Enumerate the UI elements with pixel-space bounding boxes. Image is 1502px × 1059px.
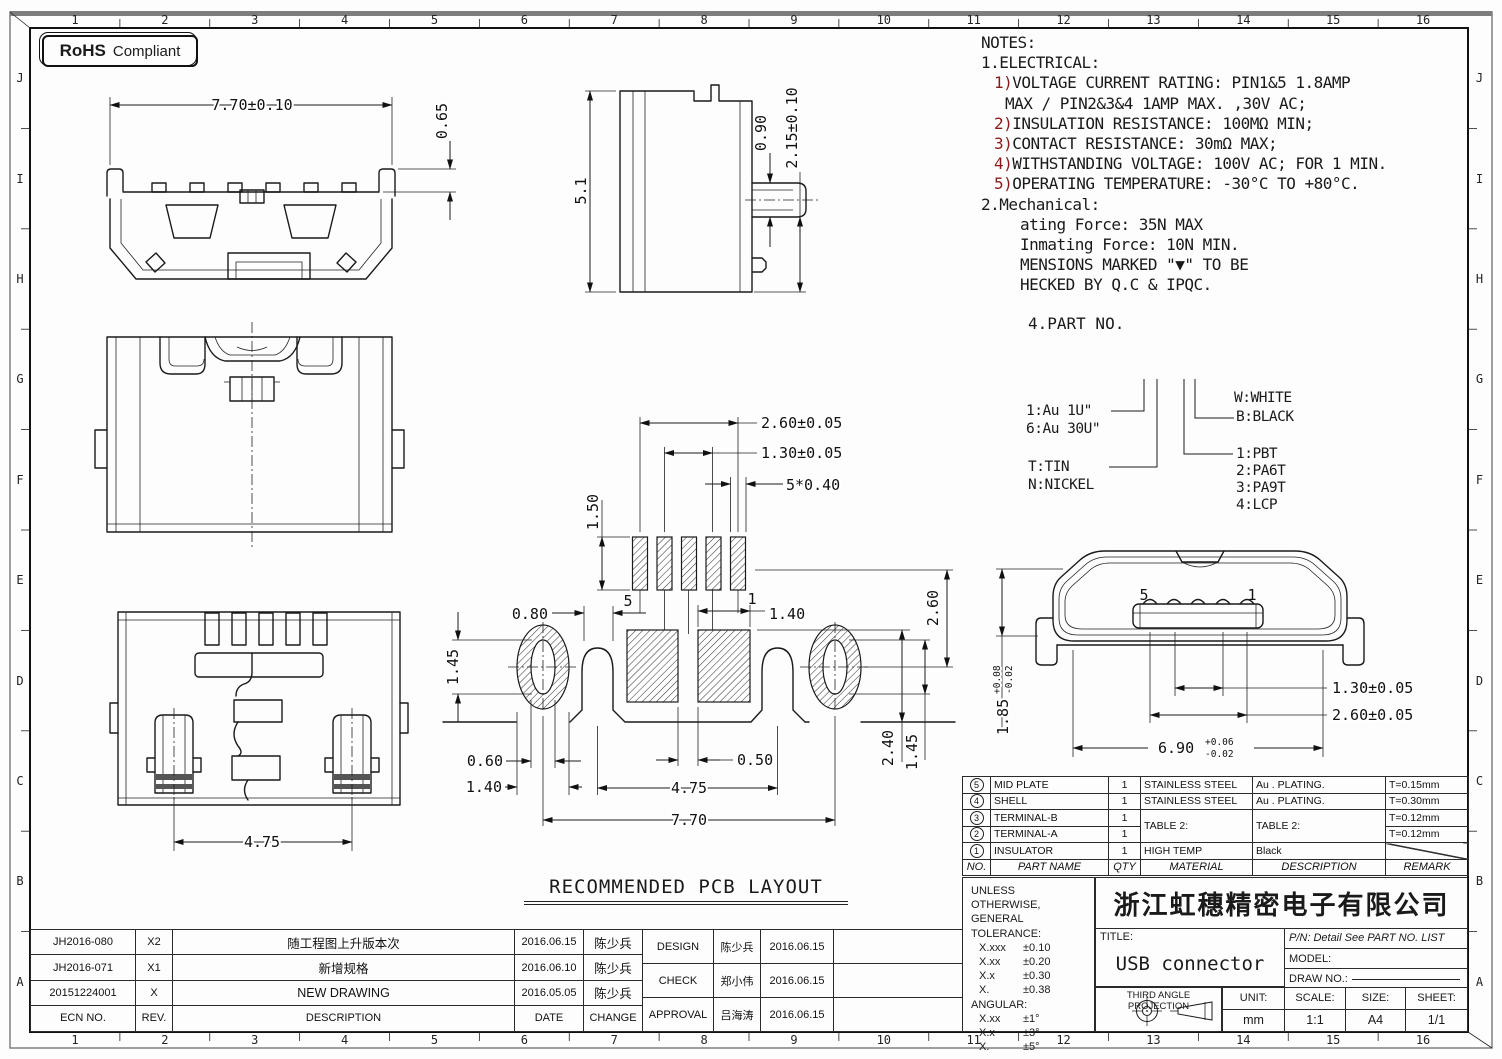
note-line: 1)VOLTAGE CURRENT RATING: PIN1&5 1.8AMP — [994, 73, 1387, 93]
company-name: 浙江虹穗精密电子有限公司 — [1095, 877, 1468, 929]
grid-label: D — [1469, 630, 1490, 730]
note-line: Inmating Force: 10N MIN. — [1020, 235, 1387, 255]
grid-label: 11 — [929, 12, 1019, 27]
partno-pa9t: 3:PA9T — [1236, 480, 1285, 496]
table-row: 5 MID PLATE1 STAINLESS STEELAu . PLATING… — [963, 777, 1469, 794]
dim-pcb-pin-pitch: 1.30±0.05 — [761, 444, 842, 462]
size-label-cell: SIZE: — [1345, 987, 1406, 1010]
grid-label: 9 — [749, 1033, 839, 1047]
grid-label: 10 — [839, 1033, 929, 1047]
grid-label: I — [1469, 128, 1490, 228]
partno-pbt: 1:PBT — [1236, 446, 1277, 462]
sheet-label-cell: SHEET: — [1405, 987, 1468, 1010]
rohs-label: Compliant — [113, 43, 181, 60]
grid-label: F — [10, 430, 30, 530]
revision-table: JH2016-080X2 随工程图上升版本次2016.06.15陈少兵 JH20… — [30, 929, 643, 1032]
notes-block: NOTES: 1.ELECTRICAL: 1)VOLTAGE CURRENT R… — [981, 33, 1387, 296]
tolerance-line: X.xx±0.20 — [971, 955, 1086, 969]
projection-label: THIRD ANGLE PROJECTION — [1096, 990, 1221, 1012]
dim-pcb-pin-span: 2.60±0.05 — [761, 414, 842, 432]
grid-label: 3 — [210, 12, 300, 27]
tolerance-line: X.xxx±0.10 — [971, 941, 1086, 955]
grid-label: 4 — [300, 1033, 390, 1047]
tolerance-line: X.±0.38 — [971, 983, 1086, 997]
dim-pcb-pad-length: 1.50 — [584, 494, 602, 530]
grid-label: C — [10, 731, 30, 831]
grid-label: B — [10, 831, 30, 931]
dim-pcb-slot-w: 0.60 — [467, 752, 503, 770]
grid-label: G — [10, 329, 30, 429]
grid-label: H — [1469, 229, 1490, 329]
dim-pcb-row-offset: 2.60 — [924, 590, 942, 626]
pcb-layout-view: 5 1 2.60±0.05 1.30±0.05 5*0.40 1.50 0.80… — [443, 414, 955, 829]
tolerance-line: UNLESS OTHERWISE, — [971, 884, 1086, 912]
rohs-badge: RoHS Compliant — [39, 32, 197, 66]
partno-nickel: N:NICKEL — [1028, 477, 1094, 493]
grid-label: J — [10, 28, 30, 128]
note-line: HECKED BY Q.C & IPQC. — [1020, 275, 1387, 295]
dim-pcb-slot-h2: 1.45 — [903, 734, 921, 770]
grid-label: 1 — [30, 12, 120, 27]
tolerance-block: UNLESS OTHERWISE, GENERAL TOLERANCE: X.x… — [962, 877, 1095, 1032]
grid-label: 16 — [1378, 1033, 1468, 1047]
approval-row: DESIGN陈少兵 2016.06.15 — [643, 930, 963, 964]
note-line: MAX / PIN2&3&4 1AMP MAX. ,30V AC; — [1005, 94, 1387, 114]
dim-bottom-span: 4.75 — [244, 833, 280, 851]
approval-row: CHECK郑小伟 2016.06.15 — [643, 964, 963, 998]
draw-no-label: DRAW NO.: — [1289, 973, 1348, 985]
grid-label: 3 — [210, 1033, 300, 1047]
dim-pcb-square-h: 2.40 — [879, 730, 897, 766]
tolerance-line: X.x±0.30 — [971, 969, 1086, 983]
partno-au1: 1:Au 1U" — [1026, 403, 1092, 419]
side-view: 5.1 0.90 2.15±0.10 — [572, 85, 818, 292]
sheet-value-cell: 1/1 — [1405, 1009, 1468, 1032]
note-line: 2)INSULATION RESISTANCE: 100MΩ MIN; — [994, 114, 1387, 134]
approval-row: APPROVAL吕海涛 2016.06.15 — [643, 998, 963, 1032]
mating-pin5-label: 5 — [1139, 586, 1148, 604]
draw-no-cell: DRAW NO.: — [1284, 968, 1468, 988]
drawing-title: USB connector — [1096, 953, 1284, 975]
tolerance-line: X.xx±1° — [971, 1012, 1086, 1026]
pn-cell: P/N: Detail See PART NO. LIST — [1284, 928, 1468, 949]
dim-pcb-hole-span: 7.70 — [671, 811, 707, 829]
grid-label: 9 — [749, 12, 839, 27]
revision-row: 20151224001X NEW DRAWING2016.05.05陈少兵 — [31, 980, 643, 1005]
grid-label: A — [1469, 932, 1490, 1032]
grid-label: J — [1469, 28, 1490, 128]
part-no-heading: 4.PART NO. — [1028, 314, 1124, 333]
grid-label: B — [1469, 831, 1490, 931]
table-row: 1 INSULATOR1 HIGH TEMPBlack — [963, 843, 1469, 860]
grid-label: 4 — [300, 12, 390, 27]
dim-mating-width: 6.90 +0.06 -0.02 — [1148, 736, 1254, 760]
note-line: ating Force: 35N MAX — [1020, 215, 1387, 235]
revision-header-row: ECN NO.REV. DESCRIPTIONDATECHANGE — [31, 1006, 643, 1031]
note-line: MENSIONS MARKED "▼" TO BE — [1020, 255, 1387, 275]
grid-label: F — [1469, 430, 1490, 530]
dim-mating-pitch: 1.30±0.05 — [1332, 679, 1413, 697]
grid-label: 1 — [30, 1033, 120, 1047]
svg-text:-0.02: -0.02 — [1205, 749, 1234, 760]
pcb-pin1-label: 1 — [747, 590, 756, 608]
svg-text:-0.02: -0.02 — [1004, 665, 1015, 694]
grid-label: 7 — [569, 12, 659, 27]
unit-value-cell: mm — [1222, 1009, 1285, 1032]
partno-white: W:WHITE — [1234, 390, 1292, 406]
svg-text:+0.06: +0.06 — [1205, 737, 1234, 748]
dim-pcb-gap: 0.50 — [737, 751, 773, 769]
grid-label: 2 — [120, 1033, 210, 1047]
grid-label: 5 — [390, 12, 480, 27]
mating-pin1-label: 1 — [1247, 586, 1256, 604]
grid-label: G — [1469, 329, 1490, 429]
note-line: 5)OPERATING TEMPERATURE: -30°C TO +80°C. — [994, 174, 1387, 194]
grid-label: 15 — [1288, 12, 1378, 27]
grid-label: 5 — [390, 1033, 480, 1047]
unit-label-cell: UNIT: — [1222, 987, 1285, 1010]
pcb-layout-caption: RECOMMENDED PCB LAYOUT — [524, 876, 848, 905]
dim-pcb-square: 1.40 — [769, 605, 805, 623]
dim-side-offset: 2.15±0.10 — [783, 87, 801, 168]
partno-tin: T:TIN — [1028, 459, 1069, 475]
revision-row: JH2016-080X2 随工程图上升版本次2016.06.15陈少兵 — [31, 930, 643, 955]
grid-label: 14 — [1198, 12, 1288, 27]
approval-table: DESIGN陈少兵 2016.06.15 CHECK郑小伟 2016.06.15… — [642, 929, 963, 1032]
svg-text:1.85: 1.85 — [994, 699, 1012, 735]
dim-front-width: 7.70±0.10 — [211, 96, 292, 114]
grid-label: 10 — [839, 12, 929, 27]
mating-face-view: 5 1 1.85 +0.08 -0.02 1.30±0.05 2.60±0.05… — [992, 551, 1413, 760]
dim-mating-span: 2.60±0.05 — [1332, 706, 1413, 724]
title-cell: TITLE: USB connector — [1095, 928, 1285, 987]
scale-value-cell: 1:1 — [1284, 1009, 1346, 1032]
grid-label: 8 — [659, 12, 749, 27]
drawing-sheet: 7.70±0.10 0.65 5.1 0.90 2.15±0.10 — [0, 0, 1502, 1059]
grid-label: H — [10, 229, 30, 329]
rohs-brand: RoHS — [60, 41, 106, 61]
table-row: 4 SHELL1 STAINLESS STEELAu . PLATING.T=0… — [963, 793, 1469, 810]
grid-label: I — [10, 128, 30, 228]
partno-black: B:BLACK — [1236, 409, 1294, 425]
dim-pcb-notch: 0.80 — [512, 605, 548, 623]
grid-label: 2 — [120, 12, 210, 27]
grid-label: A — [10, 932, 30, 1032]
revision-row: JH2016-071X1 新增规格2016.06.10陈少兵 — [31, 955, 643, 980]
partno-au30: 6:Au 30U" — [1026, 421, 1100, 437]
notes-mechanical-head: 2.Mechanical: — [981, 195, 1387, 215]
grid-label: 11 — [929, 1033, 1019, 1047]
parts-table-header-row: NO.PART NAMEQTY MATERIALDESCRIPTIONREMAR… — [963, 859, 1469, 876]
pcb-pin5-label: 5 — [623, 592, 632, 610]
notes-title: NOTES: — [981, 33, 1387, 53]
dim-mating-height: 1.85 +0.08 -0.02 — [992, 665, 1015, 735]
svg-text:+0.08: +0.08 — [992, 665, 1003, 694]
parts-table: 5 MID PLATE1 STAINLESS STEELAu . PLATING… — [962, 776, 1469, 876]
projection-cell: THIRD ANGLE PROJECTION — [1095, 987, 1222, 1032]
grid-label: 13 — [1109, 1033, 1199, 1047]
grid-label: 15 — [1288, 1033, 1378, 1047]
partno-pa6t: 2:PA6T — [1236, 463, 1285, 479]
note-line: 4)WITHSTANDING VOLTAGE: 100V AC; FOR 1 M… — [994, 154, 1387, 174]
grid-label: 12 — [1019, 12, 1109, 27]
grid-label: E — [10, 530, 30, 630]
dim-pcb-slot-h: 1.45 — [444, 649, 462, 685]
top-view — [95, 322, 404, 548]
grid-label: 14 — [1198, 1033, 1288, 1047]
grid-label: 8 — [659, 1033, 749, 1047]
grid-label: 6 — [479, 12, 569, 27]
partno-lcp: 4:LCP — [1236, 497, 1277, 513]
grid-label: 16 — [1378, 12, 1468, 27]
front-view: 7.70±0.10 0.65 — [107, 96, 456, 279]
grid-label: C — [1469, 731, 1490, 831]
dim-pcb-hole-w: 1.40 — [466, 778, 502, 796]
table-row: 3 TERMINAL-B1 TABLE 2:TABLE 2: T=0.12mm — [963, 810, 1469, 827]
title-label: TITLE: — [1100, 931, 1133, 943]
grid-label: D — [10, 630, 30, 730]
grid-label: 13 — [1109, 12, 1199, 27]
tolerance-line: ANGULAR: — [971, 998, 1086, 1012]
grid-label: 6 — [479, 1033, 569, 1047]
svg-text:6.90: 6.90 — [1158, 739, 1194, 757]
grid-label: E — [1469, 530, 1490, 630]
part-no-tree-lines — [1109, 379, 1234, 467]
model-cell: MODEL: — [1284, 948, 1468, 969]
dim-pcb-pad-width: 5*0.40 — [786, 476, 840, 494]
grid-label: 12 — [1019, 1033, 1109, 1047]
dim-side-pad: 0.90 — [752, 115, 770, 151]
size-value-cell: A4 — [1345, 1009, 1406, 1032]
note-line: 3)CONTACT RESISTANCE: 30mΩ MAX; — [994, 134, 1387, 154]
tolerance-line: GENERAL TOLERANCE: — [971, 912, 1086, 940]
dim-front-tab: 0.65 — [433, 103, 451, 139]
bottom-view: 4.75 — [110, 612, 408, 851]
dim-side-height: 5.1 — [572, 177, 590, 204]
notes-electrical-head: 1.ELECTRICAL: — [981, 53, 1387, 73]
grid-label: 7 — [569, 1033, 659, 1047]
dim-pcb-leg-span: 4.75 — [671, 779, 707, 797]
scale-label-cell: SCALE: — [1284, 987, 1346, 1010]
